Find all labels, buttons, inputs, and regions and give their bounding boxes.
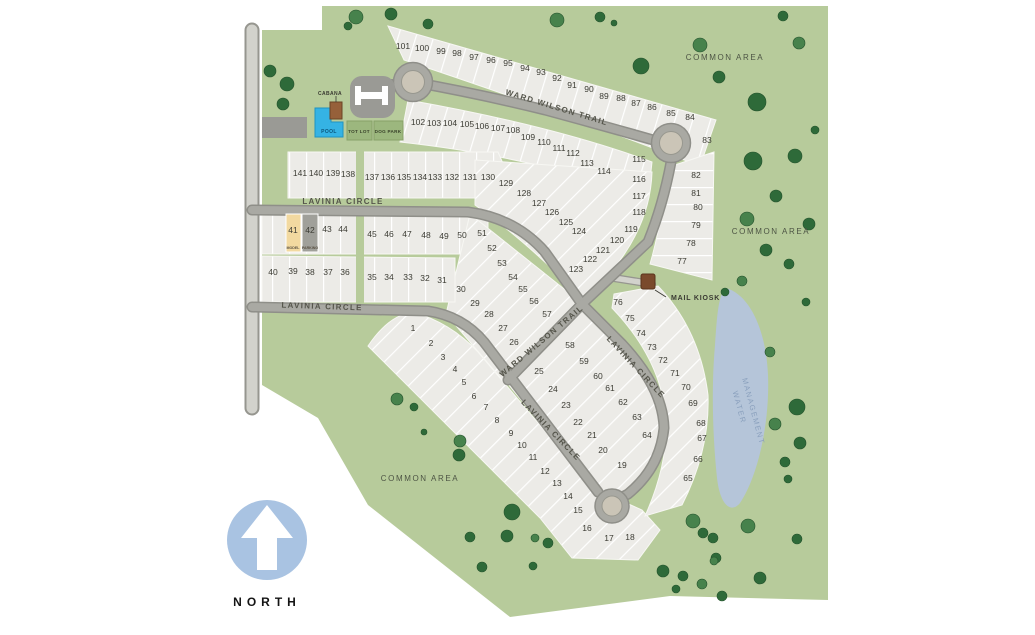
tree-icon bbox=[410, 403, 418, 411]
lot-number-121[interactable]: 121 bbox=[596, 245, 610, 255]
tree-icon bbox=[721, 288, 729, 296]
lot-number-136[interactable]: 136 bbox=[381, 172, 395, 182]
lot-number-141[interactable]: 141 bbox=[293, 168, 307, 178]
lot-number-97[interactable]: 97 bbox=[469, 52, 479, 62]
lot-number-110[interactable]: 110 bbox=[537, 137, 551, 147]
tree-icon bbox=[421, 429, 427, 435]
site-plan: NORTH WARD WILSON TRAIL WARD WILSON TRAI… bbox=[0, 0, 1035, 635]
lot-number-140[interactable]: 140 bbox=[309, 168, 323, 178]
lot-number-132[interactable]: 132 bbox=[445, 172, 459, 182]
tree-icon bbox=[789, 399, 805, 415]
tree-icon bbox=[748, 93, 766, 111]
lot-number-10[interactable]: 10 bbox=[517, 440, 527, 450]
lot-number-46[interactable]: 46 bbox=[384, 229, 394, 239]
lot-number-92[interactable]: 92 bbox=[552, 73, 562, 83]
north-label: NORTH bbox=[233, 595, 301, 609]
lot-number-137[interactable]: 137 bbox=[365, 172, 379, 182]
lot-number-30[interactable]: 30 bbox=[456, 284, 466, 294]
lot-number-38[interactable]: 38 bbox=[305, 267, 315, 277]
pool-label: POOL bbox=[321, 129, 337, 135]
lot-number-11[interactable]: 11 bbox=[529, 452, 538, 462]
lot-number-85[interactable]: 85 bbox=[666, 108, 676, 118]
common-area-label-top: COMMON AREA bbox=[686, 53, 765, 62]
tree-icon bbox=[784, 259, 794, 269]
lot-number-73[interactable]: 73 bbox=[647, 342, 657, 352]
tree-icon bbox=[595, 12, 605, 22]
tree-icon bbox=[765, 347, 775, 357]
lot-number-78[interactable]: 78 bbox=[686, 238, 696, 248]
lot-number-102[interactable]: 102 bbox=[411, 117, 425, 127]
tree-icon bbox=[529, 562, 537, 570]
lot-number-5[interactable]: 5 bbox=[462, 377, 467, 387]
mail-kiosk-icon bbox=[641, 274, 655, 289]
lot-number-69[interactable]: 69 bbox=[688, 398, 698, 408]
lot-number-4[interactable]: 4 bbox=[453, 364, 458, 374]
tree-icon bbox=[453, 449, 465, 461]
lot-number-3[interactable]: 3 bbox=[441, 352, 446, 362]
tree-icon bbox=[477, 562, 487, 572]
tree-icon bbox=[657, 565, 669, 577]
lot-number-134[interactable]: 134 bbox=[413, 172, 427, 182]
lot-number-105[interactable]: 105 bbox=[460, 119, 474, 129]
dog-park-label: DOG PARK bbox=[375, 129, 402, 134]
lot-number-133[interactable]: 133 bbox=[428, 172, 442, 182]
lot-number-60[interactable]: 60 bbox=[593, 371, 603, 381]
lot-number-18[interactable]: 18 bbox=[625, 532, 635, 542]
lot-number-15[interactable]: 15 bbox=[573, 505, 583, 515]
common-area-label-bottom: COMMON AREA bbox=[381, 474, 460, 483]
north-arrow: NORTH bbox=[227, 500, 307, 609]
lot-number-99[interactable]: 99 bbox=[436, 46, 446, 56]
lot-number-126[interactable]: 126 bbox=[545, 207, 559, 217]
tree-icon bbox=[697, 579, 707, 589]
lot-number-111[interactable]: 111 bbox=[553, 143, 566, 153]
tree-icon bbox=[633, 58, 649, 74]
tree-icon bbox=[710, 557, 718, 565]
lot-number-50[interactable]: 50 bbox=[457, 230, 467, 240]
tree-icon bbox=[740, 212, 754, 226]
tree-icon bbox=[391, 393, 403, 405]
lot-number-103[interactable]: 103 bbox=[427, 118, 441, 128]
lot-number-14[interactable]: 14 bbox=[563, 491, 573, 501]
lot-number-119[interactable]: 119 bbox=[624, 224, 638, 234]
lot-number-90[interactable]: 90 bbox=[584, 84, 594, 94]
lot-number-76[interactable]: 76 bbox=[613, 297, 623, 307]
lot-number-116[interactable]: 116 bbox=[632, 174, 646, 184]
lot-number-81[interactable]: 81 bbox=[691, 188, 701, 198]
tree-icon bbox=[672, 585, 680, 593]
lot-number-122[interactable]: 122 bbox=[583, 254, 597, 264]
lot-number-95[interactable]: 95 bbox=[503, 58, 513, 68]
lot-number-40[interactable]: 40 bbox=[268, 267, 278, 277]
lot-number-49[interactable]: 49 bbox=[439, 231, 449, 241]
lot-number-129[interactable]: 129 bbox=[499, 178, 513, 188]
lot-number-86[interactable]: 86 bbox=[647, 102, 657, 112]
lot-number-120[interactable]: 120 bbox=[610, 235, 624, 245]
lot-number-43[interactable]: 43 bbox=[322, 224, 332, 234]
lot-number-88[interactable]: 88 bbox=[616, 93, 626, 103]
tree-icon bbox=[501, 530, 513, 542]
lot-number-39[interactable]: 39 bbox=[288, 266, 298, 276]
lot-number-47[interactable]: 47 bbox=[402, 229, 412, 239]
lot-number-17[interactable]: 17 bbox=[604, 533, 614, 543]
tree-icon bbox=[504, 504, 520, 520]
lot-number-71[interactable]: 71 bbox=[670, 368, 680, 378]
lot-number-54[interactable]: 54 bbox=[508, 272, 518, 282]
lot-number-56[interactable]: 56 bbox=[529, 296, 539, 306]
lot-number-33[interactable]: 33 bbox=[403, 272, 413, 282]
lot-number-45[interactable]: 45 bbox=[367, 229, 377, 239]
lot-number-128[interactable]: 128 bbox=[517, 188, 531, 198]
lot-number-139[interactable]: 139 bbox=[326, 168, 340, 178]
tree-icon bbox=[794, 437, 806, 449]
tree-icon bbox=[678, 571, 688, 581]
tree-icon bbox=[760, 244, 772, 256]
lot-number-123[interactable]: 123 bbox=[569, 264, 583, 274]
lot-number-87[interactable]: 87 bbox=[631, 98, 641, 108]
parking-label: PARKING bbox=[302, 246, 319, 250]
lot-number-36[interactable]: 36 bbox=[340, 267, 350, 277]
lot-number-63[interactable]: 63 bbox=[632, 412, 642, 422]
lot-number-72[interactable]: 72 bbox=[658, 355, 668, 365]
tree-icon bbox=[793, 37, 805, 49]
lot-number-61[interactable]: 61 bbox=[605, 383, 615, 393]
lot-number-117[interactable]: 117 bbox=[632, 191, 646, 201]
lot-number-7[interactable]: 7 bbox=[484, 402, 489, 412]
lot-number-112[interactable]: 112 bbox=[566, 148, 580, 158]
lot-number-125[interactable]: 125 bbox=[559, 217, 573, 227]
lot-number-70[interactable]: 70 bbox=[681, 382, 691, 392]
lot-number-131[interactable]: 131 bbox=[463, 172, 477, 182]
lot-number-22[interactable]: 22 bbox=[573, 417, 583, 427]
lot-number-26[interactable]: 26 bbox=[509, 337, 519, 347]
lot-number-28[interactable]: 28 bbox=[484, 309, 494, 319]
tree-icon bbox=[713, 71, 725, 83]
tree-icon bbox=[423, 19, 433, 29]
cabana-building bbox=[330, 102, 342, 119]
lot-number-127[interactable]: 127 bbox=[532, 198, 546, 208]
lot-number-96[interactable]: 96 bbox=[486, 55, 496, 65]
tree-icon bbox=[811, 126, 819, 134]
tree-icon bbox=[693, 38, 707, 52]
lot-number-101[interactable]: 101 bbox=[396, 41, 410, 51]
lot-number-100[interactable]: 100 bbox=[415, 43, 429, 53]
tree-icon bbox=[792, 534, 802, 544]
lot-number-59[interactable]: 59 bbox=[579, 356, 589, 366]
lot-number-77[interactable]: 77 bbox=[677, 256, 687, 266]
lot-number-106[interactable]: 106 bbox=[475, 121, 489, 131]
lot-number-42[interactable]: 42 bbox=[305, 225, 315, 235]
lot-number-55[interactable]: 55 bbox=[518, 284, 528, 294]
lot-number-65[interactable]: 65 bbox=[683, 473, 693, 483]
tree-icon bbox=[754, 572, 766, 584]
lot-number-52[interactable]: 52 bbox=[487, 243, 497, 253]
lot-number-8[interactable]: 8 bbox=[495, 415, 500, 425]
lot-number-64[interactable]: 64 bbox=[642, 430, 652, 440]
lot-number-74[interactable]: 74 bbox=[636, 328, 646, 338]
street-label-lavinia-top: LAVINIA CIRCLE bbox=[302, 197, 383, 206]
lot-number-48[interactable]: 48 bbox=[421, 230, 431, 240]
lot-number-98[interactable]: 98 bbox=[452, 48, 462, 58]
tree-icon bbox=[543, 538, 553, 548]
tot-lot-label: TOT LOT bbox=[348, 129, 370, 134]
tree-icon bbox=[385, 8, 397, 20]
tree-icon bbox=[686, 514, 700, 528]
lot-number-130[interactable]: 130 bbox=[481, 172, 495, 182]
lot-number-68[interactable]: 68 bbox=[696, 418, 706, 428]
tree-icon bbox=[770, 190, 782, 202]
lot-number-109[interactable]: 109 bbox=[521, 132, 535, 142]
lot-number-53[interactable]: 53 bbox=[497, 258, 507, 268]
lot-number-31[interactable]: 31 bbox=[437, 275, 447, 285]
tree-icon bbox=[550, 13, 564, 27]
lot-number-20[interactable]: 20 bbox=[598, 445, 608, 455]
tree-icon bbox=[788, 149, 802, 163]
lot-number-58[interactable]: 58 bbox=[565, 340, 575, 350]
tree-icon bbox=[780, 457, 790, 467]
lot-number-2[interactable]: 2 bbox=[429, 338, 434, 348]
lot-number-94[interactable]: 94 bbox=[520, 63, 530, 73]
lot-number-107[interactable]: 107 bbox=[491, 123, 505, 133]
lot-number-118[interactable]: 118 bbox=[632, 207, 646, 217]
lot-number-84[interactable]: 84 bbox=[685, 112, 695, 122]
tree-icon bbox=[698, 528, 708, 538]
site-plan-svg: NORTH WARD WILSON TRAIL WARD WILSON TRAI… bbox=[0, 0, 1035, 635]
lot-number-79[interactable]: 79 bbox=[691, 220, 701, 230]
lot-number-32[interactable]: 32 bbox=[420, 273, 430, 283]
tree-icon bbox=[708, 533, 718, 543]
tree-icon bbox=[611, 20, 617, 26]
lot-number-19[interactable]: 19 bbox=[617, 460, 627, 470]
lot-number-13[interactable]: 13 bbox=[552, 478, 562, 488]
tree-icon bbox=[802, 298, 810, 306]
tree-icon bbox=[769, 418, 781, 430]
lot-number-51[interactable]: 51 bbox=[477, 228, 487, 238]
lot-number-104[interactable]: 104 bbox=[443, 118, 457, 128]
lot-number-108[interactable]: 108 bbox=[506, 125, 520, 135]
tree-icon bbox=[264, 65, 276, 77]
lot-number-24[interactable]: 24 bbox=[548, 384, 558, 394]
lot-number-83[interactable]: 83 bbox=[702, 135, 712, 145]
lot-number-27[interactable]: 27 bbox=[498, 323, 508, 333]
lot-number-37[interactable]: 37 bbox=[323, 267, 333, 277]
lot-number-89[interactable]: 89 bbox=[599, 91, 609, 101]
tree-icon bbox=[778, 11, 788, 21]
lot-number-135[interactable]: 135 bbox=[397, 172, 411, 182]
lot-number-113[interactable]: 113 bbox=[580, 158, 594, 168]
lot-number-6[interactable]: 6 bbox=[472, 391, 477, 401]
parking-lot bbox=[262, 117, 307, 138]
tree-icon bbox=[344, 22, 352, 30]
lot-number-80[interactable]: 80 bbox=[693, 202, 703, 212]
lot-number-23[interactable]: 23 bbox=[561, 400, 571, 410]
common-area-label-right: COMMON AREA bbox=[732, 227, 811, 236]
lot-number-44[interactable]: 44 bbox=[338, 224, 348, 234]
tree-icon bbox=[737, 276, 747, 286]
lot-number-115[interactable]: 115 bbox=[632, 154, 646, 164]
tree-icon bbox=[349, 10, 363, 24]
lot-number-25[interactable]: 25 bbox=[534, 366, 544, 376]
lot-number-82[interactable]: 82 bbox=[691, 170, 701, 180]
tree-icon bbox=[531, 534, 539, 542]
tree-icon bbox=[454, 435, 466, 447]
green-gap-strip bbox=[356, 150, 364, 304]
lot-number-16[interactable]: 16 bbox=[582, 523, 592, 533]
lot-number-138[interactable]: 138 bbox=[341, 169, 355, 179]
lot-number-91[interactable]: 91 bbox=[567, 80, 577, 90]
lot-number-57[interactable]: 57 bbox=[542, 309, 552, 319]
lot-number-41[interactable]: 41 bbox=[288, 225, 298, 235]
lot-number-66[interactable]: 66 bbox=[693, 454, 703, 464]
cabana-label: CABANA bbox=[318, 91, 342, 97]
lot-number-1[interactable]: 1 bbox=[411, 323, 416, 333]
lot-number-114[interactable]: 114 bbox=[597, 166, 611, 176]
lot-number-62[interactable]: 62 bbox=[618, 397, 628, 407]
tree-icon bbox=[277, 98, 289, 110]
tree-icon bbox=[744, 152, 762, 170]
tree-icon bbox=[280, 77, 294, 91]
lot-number-9[interactable]: 9 bbox=[509, 428, 514, 438]
tree-icon bbox=[465, 532, 475, 542]
tree-icon bbox=[784, 475, 792, 483]
lot-number-21[interactable]: 21 bbox=[587, 430, 597, 440]
lot-number-29[interactable]: 29 bbox=[470, 298, 480, 308]
model-label: MODEL bbox=[287, 246, 301, 250]
lot-number-35[interactable]: 35 bbox=[367, 272, 377, 282]
lot-number-93[interactable]: 93 bbox=[536, 67, 546, 77]
lot-number-67[interactable]: 67 bbox=[697, 433, 707, 443]
mail-kiosk-label: MAIL KIOSK bbox=[671, 295, 720, 302]
tree-icon bbox=[717, 591, 727, 601]
lot-number-34[interactable]: 34 bbox=[384, 272, 394, 282]
lot-number-75[interactable]: 75 bbox=[625, 313, 635, 323]
tree-icon bbox=[741, 519, 755, 533]
lot-number-124[interactable]: 124 bbox=[572, 226, 586, 236]
lot-number-12[interactable]: 12 bbox=[540, 466, 550, 476]
